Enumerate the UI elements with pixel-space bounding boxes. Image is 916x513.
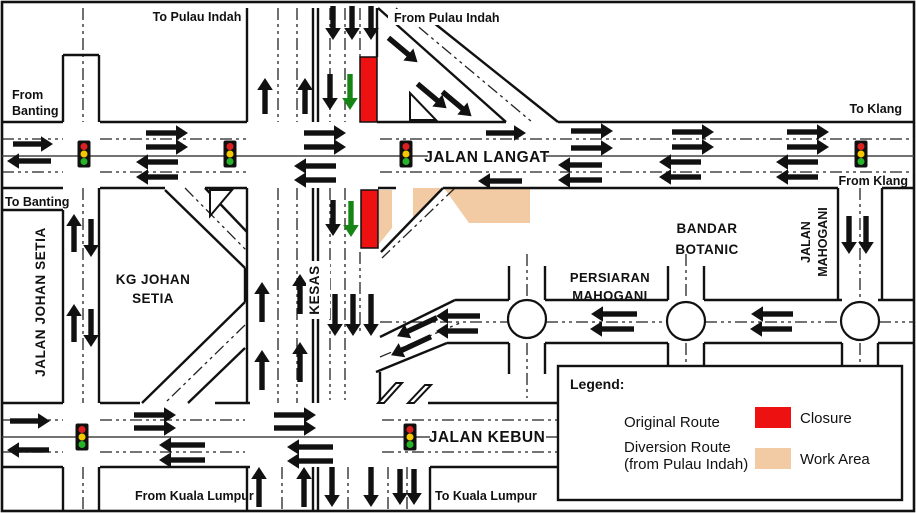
label-to-banting: To Banting xyxy=(5,195,69,209)
label-bandar-botanic-line1: BANDAR xyxy=(677,221,738,236)
label-bandar-botanic-line2: BOTANIC xyxy=(675,242,738,257)
label-jalan-kebun: JALAN KEBUN xyxy=(429,429,546,446)
label-to-pulau-indah: To Pulau Indah xyxy=(153,10,242,24)
legend-closure-label: Closure xyxy=(800,410,852,427)
closure-shape xyxy=(361,190,378,248)
traffic-light-icon xyxy=(224,141,237,168)
roundabout xyxy=(841,302,879,340)
traffic-light-icon xyxy=(400,141,413,168)
traffic-light-icon xyxy=(78,141,91,168)
label-from-klang: From Klang xyxy=(839,174,908,188)
label-jalan-langat: JALAN LANGAT xyxy=(424,149,549,166)
label-from-kuala-lumpur: From Kuala Lumpur xyxy=(135,489,254,503)
roundabout xyxy=(508,300,546,338)
diversion-map-page: To Pulau Indah From Pulau Indah From Ban… xyxy=(0,0,916,513)
roundabout xyxy=(667,302,705,340)
legend-diversion-route-label-line2: (from Pulau Indah) xyxy=(624,456,748,473)
label-jalan-johan-setia: JALAN JOHAN SETIA xyxy=(33,227,48,377)
label-jalan-mahogani-line2: MAHOGANI xyxy=(816,207,830,276)
label-jalan-mahogani-line1: JALAN xyxy=(799,221,813,263)
label-from-pulau-indah: From Pulau Indah xyxy=(394,11,500,25)
label-kg-johan-setia-line1: KG JOHAN xyxy=(116,272,190,287)
traffic-light-icon xyxy=(404,424,417,451)
label-to-klang: To Klang xyxy=(849,102,902,116)
label-from-banting-line1: From xyxy=(12,88,43,102)
label-to-kuala-lumpur: To Kuala Lumpur xyxy=(435,489,537,503)
legend-original-route-label: Original Route xyxy=(624,414,720,431)
traffic-light-icon xyxy=(855,141,868,168)
legend-work-area-label: Work Area xyxy=(800,451,870,468)
legend-box: Legend: Original Route Diversion Route (… xyxy=(558,366,902,500)
label-persiaran-mahogani-line2: MAHOGANI xyxy=(572,288,647,303)
label-kesas: KESAS xyxy=(307,265,322,315)
road-diversion-diagram: To Pulau Indah From Pulau Indah From Ban… xyxy=(0,0,916,513)
legend-title: Legend: xyxy=(570,376,624,392)
legend-closure-swatch xyxy=(755,407,791,428)
label-from-banting-line2: Banting xyxy=(12,104,59,118)
label-kg-johan-setia-line2: SETIA xyxy=(132,291,174,306)
traffic-light-icon xyxy=(76,424,89,451)
closure-shape xyxy=(360,57,377,122)
legend-work-area-swatch xyxy=(755,448,791,469)
legend-diversion-route-label-line1: Diversion Route xyxy=(624,439,731,456)
label-persiaran-mahogani-line1: PERSIARAN xyxy=(570,270,650,285)
